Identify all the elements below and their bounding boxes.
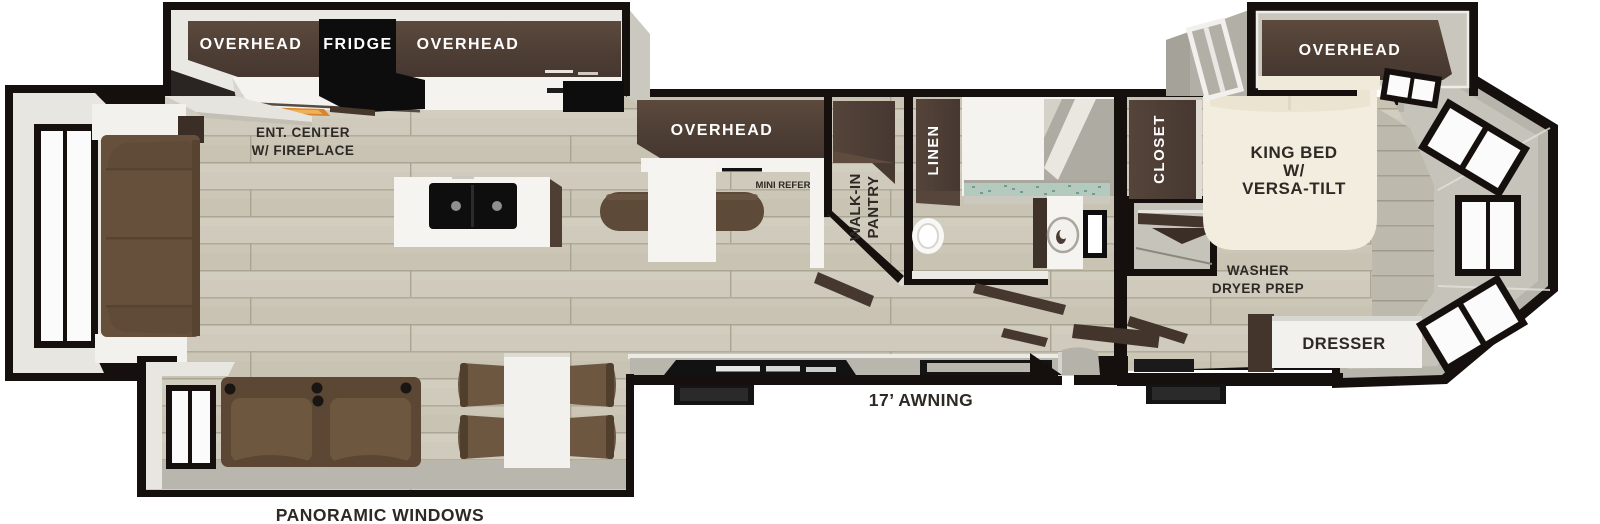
svg-text:DRYER PREP: DRYER PREP bbox=[1212, 281, 1304, 296]
svg-text:OVERHEAD: OVERHEAD bbox=[417, 36, 520, 53]
svg-text:VERSA-TILT: VERSA-TILT bbox=[1242, 179, 1346, 198]
svg-text:W/ FIREPLACE: W/ FIREPLACE bbox=[252, 143, 355, 158]
svg-text:OVERHEAD: OVERHEAD bbox=[1299, 42, 1402, 59]
svg-text:PANORAMIC WINDOWS: PANORAMIC WINDOWS bbox=[276, 505, 484, 524]
svg-text:FRIDGE: FRIDGE bbox=[323, 36, 392, 53]
svg-text:KING BED: KING BED bbox=[1250, 143, 1337, 162]
svg-text:LINEN: LINEN bbox=[926, 125, 942, 176]
svg-text:WALK-INPANTRY: WALK-INPANTRY bbox=[847, 173, 882, 241]
svg-text:CLOSET: CLOSET bbox=[1151, 114, 1168, 184]
svg-text:ENT. CENTER: ENT. CENTER bbox=[256, 125, 350, 140]
svg-text:MINI REFER: MINI REFER bbox=[756, 180, 811, 191]
svg-text:OVERHEAD: OVERHEAD bbox=[200, 36, 303, 53]
svg-text:OVERHEAD: OVERHEAD bbox=[671, 122, 774, 139]
svg-text:17’ AWNING: 17’ AWNING bbox=[869, 390, 974, 410]
svg-text:WASHER: WASHER bbox=[1227, 263, 1289, 278]
svg-text:DRESSER: DRESSER bbox=[1302, 335, 1385, 353]
svg-text:W/: W/ bbox=[1283, 161, 1305, 180]
